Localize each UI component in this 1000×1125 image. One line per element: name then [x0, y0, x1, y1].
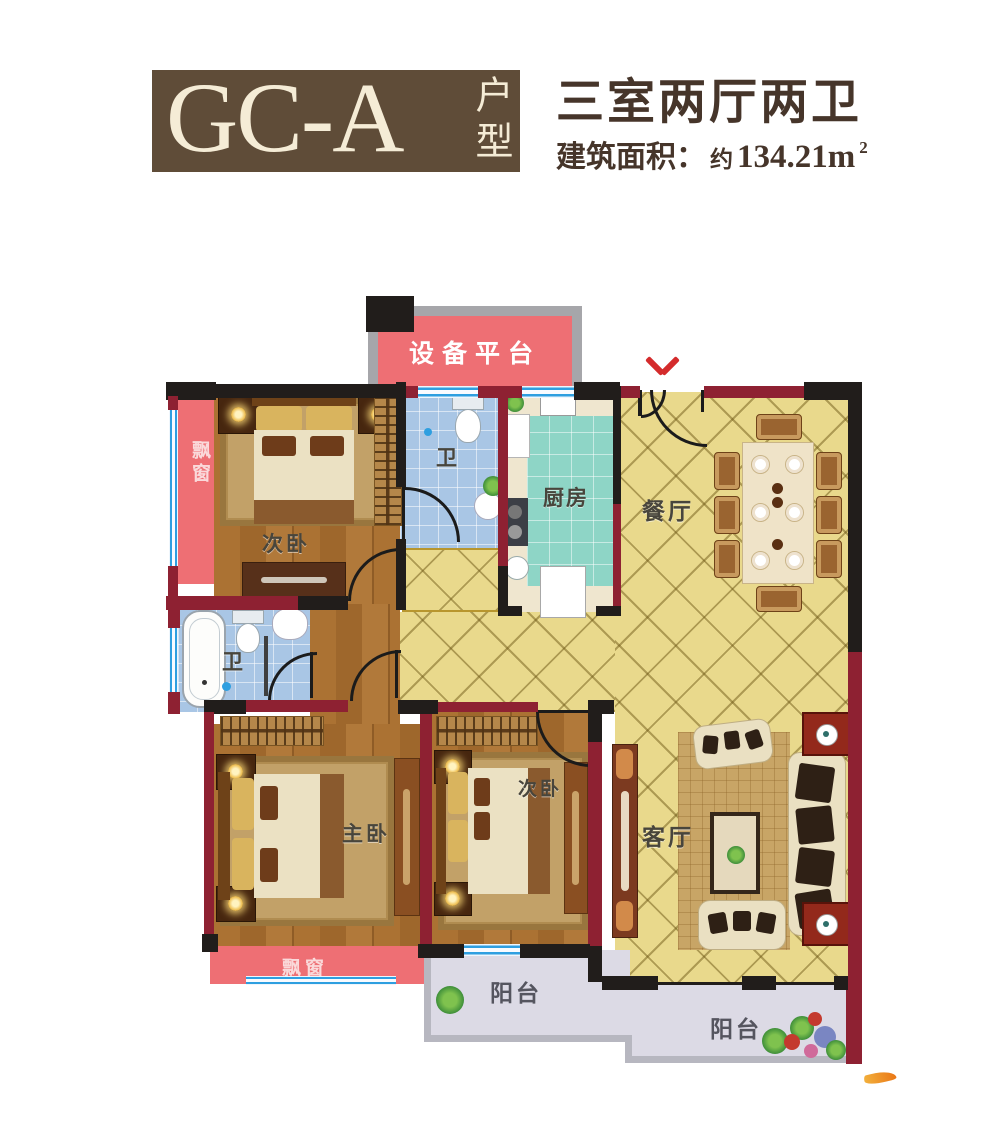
dining-chair — [756, 414, 802, 440]
wall-segment — [596, 606, 621, 616]
coffee-table — [710, 812, 760, 894]
kitchen-cart — [540, 566, 586, 618]
wall-segment — [202, 934, 218, 952]
wall-segment — [834, 976, 848, 990]
bathtub — [182, 610, 226, 708]
master-bed — [218, 772, 346, 900]
wall-segment — [168, 692, 180, 714]
tv-stand — [612, 744, 638, 938]
wall-segment — [742, 976, 776, 990]
side-table — [802, 712, 850, 756]
wall-segment — [396, 539, 406, 610]
balcony-wall — [424, 1035, 632, 1042]
master-bedroom-label: 主卧 — [342, 818, 390, 848]
wall-segment — [498, 606, 522, 616]
balcony-small-label: 阳台 — [490, 974, 542, 1008]
wall-segment — [438, 702, 538, 712]
wall-segment — [398, 700, 438, 714]
wall-segment — [602, 976, 658, 990]
watermark-swoosh-icon — [863, 1068, 897, 1086]
wall-segment — [588, 714, 602, 982]
bathroom-middle-label: 卫 — [222, 646, 243, 676]
wall-segment — [298, 596, 348, 610]
bedroom-bottom-label: 次卧 — [518, 774, 562, 801]
wall-segment — [246, 700, 348, 712]
wall-segment — [704, 386, 804, 398]
window — [464, 944, 520, 956]
bay-window-left-label: 飘窗 — [186, 440, 213, 486]
floor-drain — [222, 682, 231, 691]
area-approx: 约 — [710, 147, 733, 172]
floorplan-page: GC-A 户型 三室两厅两卫 建筑面积： 约 134.21m 2 设备平台 飘窗… — [0, 0, 1000, 1125]
flowers-icon — [760, 1008, 850, 1062]
toilet-tank — [452, 396, 484, 410]
tv-cabinet — [564, 762, 588, 914]
dining-chair — [816, 540, 842, 578]
dining-chair — [714, 452, 740, 490]
tv-cabinet — [394, 758, 420, 916]
dining-chair — [714, 496, 740, 534]
window — [169, 628, 178, 692]
wall-segment — [168, 566, 178, 598]
side-table — [802, 902, 850, 946]
kitchen-sink — [540, 396, 576, 416]
area-line: 建筑面积： 约 134.21m 2 — [556, 132, 868, 176]
wall-segment — [166, 596, 298, 610]
wall-segment — [588, 714, 602, 742]
round-sink — [505, 556, 529, 580]
dining-room-label: 餐厅 — [642, 492, 694, 526]
wall-segment — [418, 944, 464, 958]
area-value: 134.21m — [737, 139, 855, 175]
wall-segment — [366, 296, 414, 332]
hallway-floor — [400, 612, 615, 712]
window — [522, 386, 574, 398]
wall-segment — [396, 382, 406, 487]
plan-code: GC-A — [166, 66, 466, 168]
wall-segment — [613, 504, 621, 616]
wall-segment — [588, 700, 614, 714]
wall-segment — [846, 982, 862, 1064]
toilet-tank — [232, 610, 264, 624]
sliding-door — [776, 982, 834, 985]
window — [169, 410, 178, 568]
wardrobe — [436, 716, 538, 746]
wall-segment — [498, 386, 508, 566]
window — [246, 976, 396, 985]
dining-chair — [816, 452, 842, 490]
sliding-door — [658, 982, 742, 985]
dining-chair — [714, 540, 740, 578]
wall-segment — [168, 396, 178, 410]
bedroom-top-label: 次卧 — [262, 528, 310, 558]
bay-window-left: 飘窗 — [176, 396, 216, 584]
wall-segment — [212, 384, 402, 398]
window — [418, 386, 478, 398]
sofa-small — [698, 900, 786, 950]
washbasin — [272, 608, 308, 640]
entry-mat — [402, 548, 500, 612]
floor-drain — [424, 428, 432, 436]
wardrobe — [220, 716, 324, 746]
area-label: 建筑面积： — [556, 141, 706, 174]
wall-segment — [620, 386, 640, 398]
plan-code-box: GC-A 户型 — [152, 70, 520, 172]
kitchen-label: 厨房 — [543, 482, 589, 512]
wall-segment — [520, 944, 590, 958]
plan-type-vertical: 户型 — [468, 75, 512, 169]
toilet-icon — [455, 409, 481, 443]
wall-segment — [848, 382, 862, 652]
bedroom-top-bed — [252, 394, 356, 526]
area-exponent: 2 — [859, 138, 868, 157]
page-title: 三室两厅两卫 — [556, 62, 862, 132]
dresser — [242, 562, 346, 598]
wall-segment — [420, 714, 432, 948]
wall-segment — [848, 652, 862, 982]
wall-segment — [204, 712, 214, 938]
dining-chair — [756, 586, 802, 612]
balcony-wall — [424, 950, 431, 1042]
wall-segment — [613, 386, 621, 504]
wall-segment — [588, 946, 602, 982]
plant-icon — [436, 986, 464, 1014]
dining-table — [742, 442, 814, 584]
bathroom-top-label: 卫 — [436, 442, 457, 472]
dining-chair — [816, 496, 842, 534]
shower-partition — [264, 636, 268, 696]
living-room-label: 客厅 — [642, 818, 694, 852]
entry-arrow-icon — [644, 354, 684, 380]
balcony-large-label: 阳台 — [710, 1010, 762, 1044]
